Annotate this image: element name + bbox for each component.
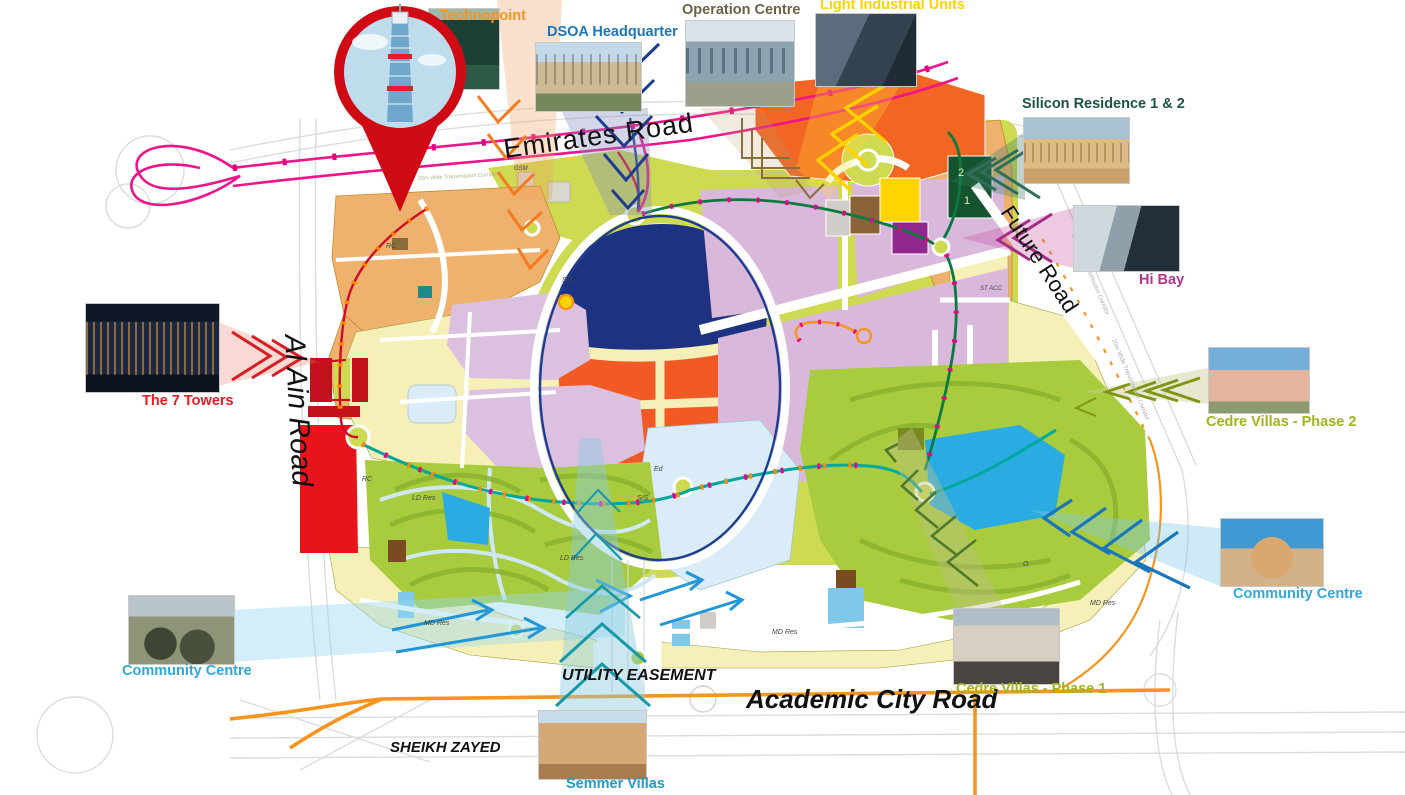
photo-dsoa-headquarter	[535, 42, 642, 112]
photo-hi-bay	[1073, 205, 1180, 272]
photo-cedre-villas-2	[1208, 347, 1310, 414]
photo-cedre-villas-1	[953, 608, 1060, 685]
masterplan-page: Emirates Road Al Ain Road Future Road Ac…	[0, 0, 1405, 795]
svg-text:MD Res: MD Res	[772, 629, 798, 636]
svg-text:1: 1	[964, 195, 970, 207]
label-operation-centre: Operation Centre	[682, 2, 800, 18]
svg-text:LD Res: LD Res	[560, 555, 584, 562]
road-label-utility-easement: UTILITY EASEMENT	[562, 667, 717, 684]
road-label-sheikh-zayed: SHEIKH ZAYED	[390, 739, 501, 756]
photo-community-centre-w	[128, 595, 235, 665]
svg-text:S/S: S/S	[637, 495, 649, 502]
svg-text:S/S: S/S	[562, 277, 574, 284]
label-hi-bay: Hi Bay	[1139, 272, 1184, 288]
photo-the-7-towers	[85, 303, 220, 393]
svg-text:GSM: GSM	[514, 166, 528, 172]
svg-text:MD Res: MD Res	[1090, 600, 1116, 607]
location-pin-marker	[318, 0, 498, 230]
svg-text:LD Res: LD Res	[412, 495, 436, 502]
label-semmer-villas: Semmer Villas	[566, 776, 665, 792]
svg-text:ST ACC: ST ACC	[980, 286, 1002, 292]
svg-text:O: O	[1023, 561, 1029, 568]
svg-text:2: 2	[958, 167, 964, 179]
label-light-industrial: Light Industrial Units	[820, 0, 965, 13]
label-the-7-towers: The 7 Towers	[142, 393, 234, 409]
photo-community-centre-e	[1220, 518, 1324, 587]
svg-text:MD Res: MD Res	[424, 620, 450, 627]
photo-semmer-villas	[538, 710, 647, 780]
label-cedre-villas-1: Cedre Villas - Phase 1	[956, 681, 1106, 697]
photo-silicon-residence	[1023, 117, 1130, 184]
label-community-centre-e: Community Centre	[1233, 586, 1363, 602]
photo-light-industrial	[815, 13, 917, 87]
photo-operation-centre	[685, 20, 795, 107]
label-community-centre-w: Community Centre	[122, 663, 252, 679]
road-label-al-ain: Al Ain Road	[278, 332, 318, 488]
svg-text:RC: RC	[362, 476, 373, 483]
label-dsoa-headquarter: DSOA Headquarter	[547, 24, 678, 40]
svg-text:Ed: Ed	[654, 466, 664, 473]
svg-text:RC: RC	[386, 243, 397, 250]
label-cedre-villas-2: Cedre Villas - Phase 2	[1206, 414, 1356, 430]
label-silicon-residence: Silicon Residence 1 & 2	[1022, 96, 1185, 112]
